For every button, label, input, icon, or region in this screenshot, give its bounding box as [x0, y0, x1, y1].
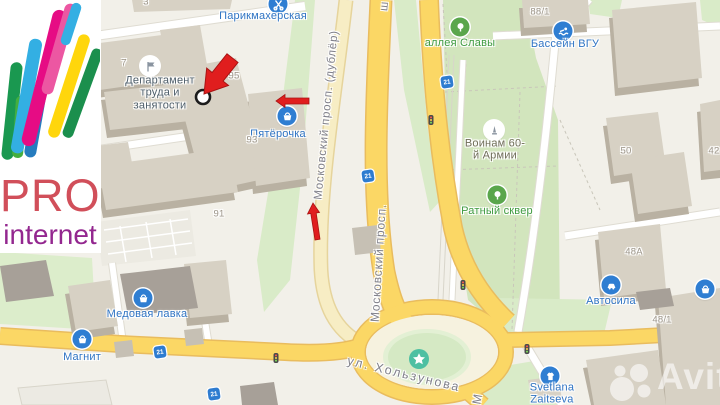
poi-label-parikmakherskaya[interactable]: Парикмахерская	[219, 10, 307, 22]
poi-label-medovaya-lavka[interactable]: Медовая лавка	[107, 308, 188, 320]
building-number: 91	[214, 210, 225, 221]
building-number: 3	[143, 0, 148, 8]
basket-icon[interactable]	[73, 330, 92, 349]
building-number: 48/1	[652, 316, 671, 327]
tram-stop-icon[interactable]: 21	[440, 75, 454, 89]
poi-label-alleya-slavy[interactable]: аллея Славы	[425, 37, 496, 49]
map-canvas[interactable]	[0, 0, 720, 405]
logo-subtitle: internet	[0, 219, 100, 251]
building-number: 93	[247, 136, 258, 147]
cart-icon[interactable]	[696, 280, 715, 299]
street-label-top-partial: ш	[378, 0, 392, 11]
tree-icon[interactable]	[451, 18, 470, 37]
pro-internet-logo: PRO internet	[0, 0, 101, 253]
building-number: 95	[229, 72, 240, 83]
building-number: 88/1	[530, 8, 549, 19]
street-label-moskovsky-partial: М	[470, 393, 485, 405]
tram-stop-icon[interactable]: 21	[361, 169, 375, 183]
poi-label-magnit[interactable]: Магнит	[63, 351, 101, 363]
poi-label-ratny-skver[interactable]: Ратный сквер	[461, 205, 533, 217]
building-number: 50	[621, 147, 632, 158]
basket-icon[interactable]	[134, 289, 153, 308]
poi-label-svetlana-zaitseva[interactable]: Svetlana Zaitseva	[530, 382, 574, 405]
poi-label-departament[interactable]: Департамент труда и занятости	[125, 75, 195, 112]
monument-icon[interactable]	[485, 121, 504, 140]
building-number: 48А	[625, 248, 643, 259]
poi-label-avtosila[interactable]: Автосила	[586, 295, 636, 307]
logo-sail-graphic	[0, 0, 100, 170]
building-number: 7	[121, 59, 126, 70]
tram-stop-icon[interactable]: 21	[207, 387, 221, 401]
poi-label-pyaterochka[interactable]: Пятёрочка	[250, 128, 306, 140]
poi-label-bassein-vgu[interactable]: Бассейн ВГУ	[531, 38, 599, 50]
basket-icon[interactable]	[278, 107, 297, 126]
car-icon[interactable]	[602, 276, 621, 295]
star-poi	[409, 349, 429, 369]
tree-icon[interactable]	[488, 186, 507, 205]
building-number: 42	[709, 147, 720, 158]
logo-title: PRO	[0, 170, 100, 222]
flag-icon[interactable]	[141, 57, 160, 76]
poi-label-voinam[interactable]: Воинам 60- й Армии	[465, 138, 525, 163]
map-screenshot: Парикмахерская Департамент труда и занят…	[0, 0, 720, 405]
tram-stop-icon[interactable]: 21	[153, 345, 167, 359]
